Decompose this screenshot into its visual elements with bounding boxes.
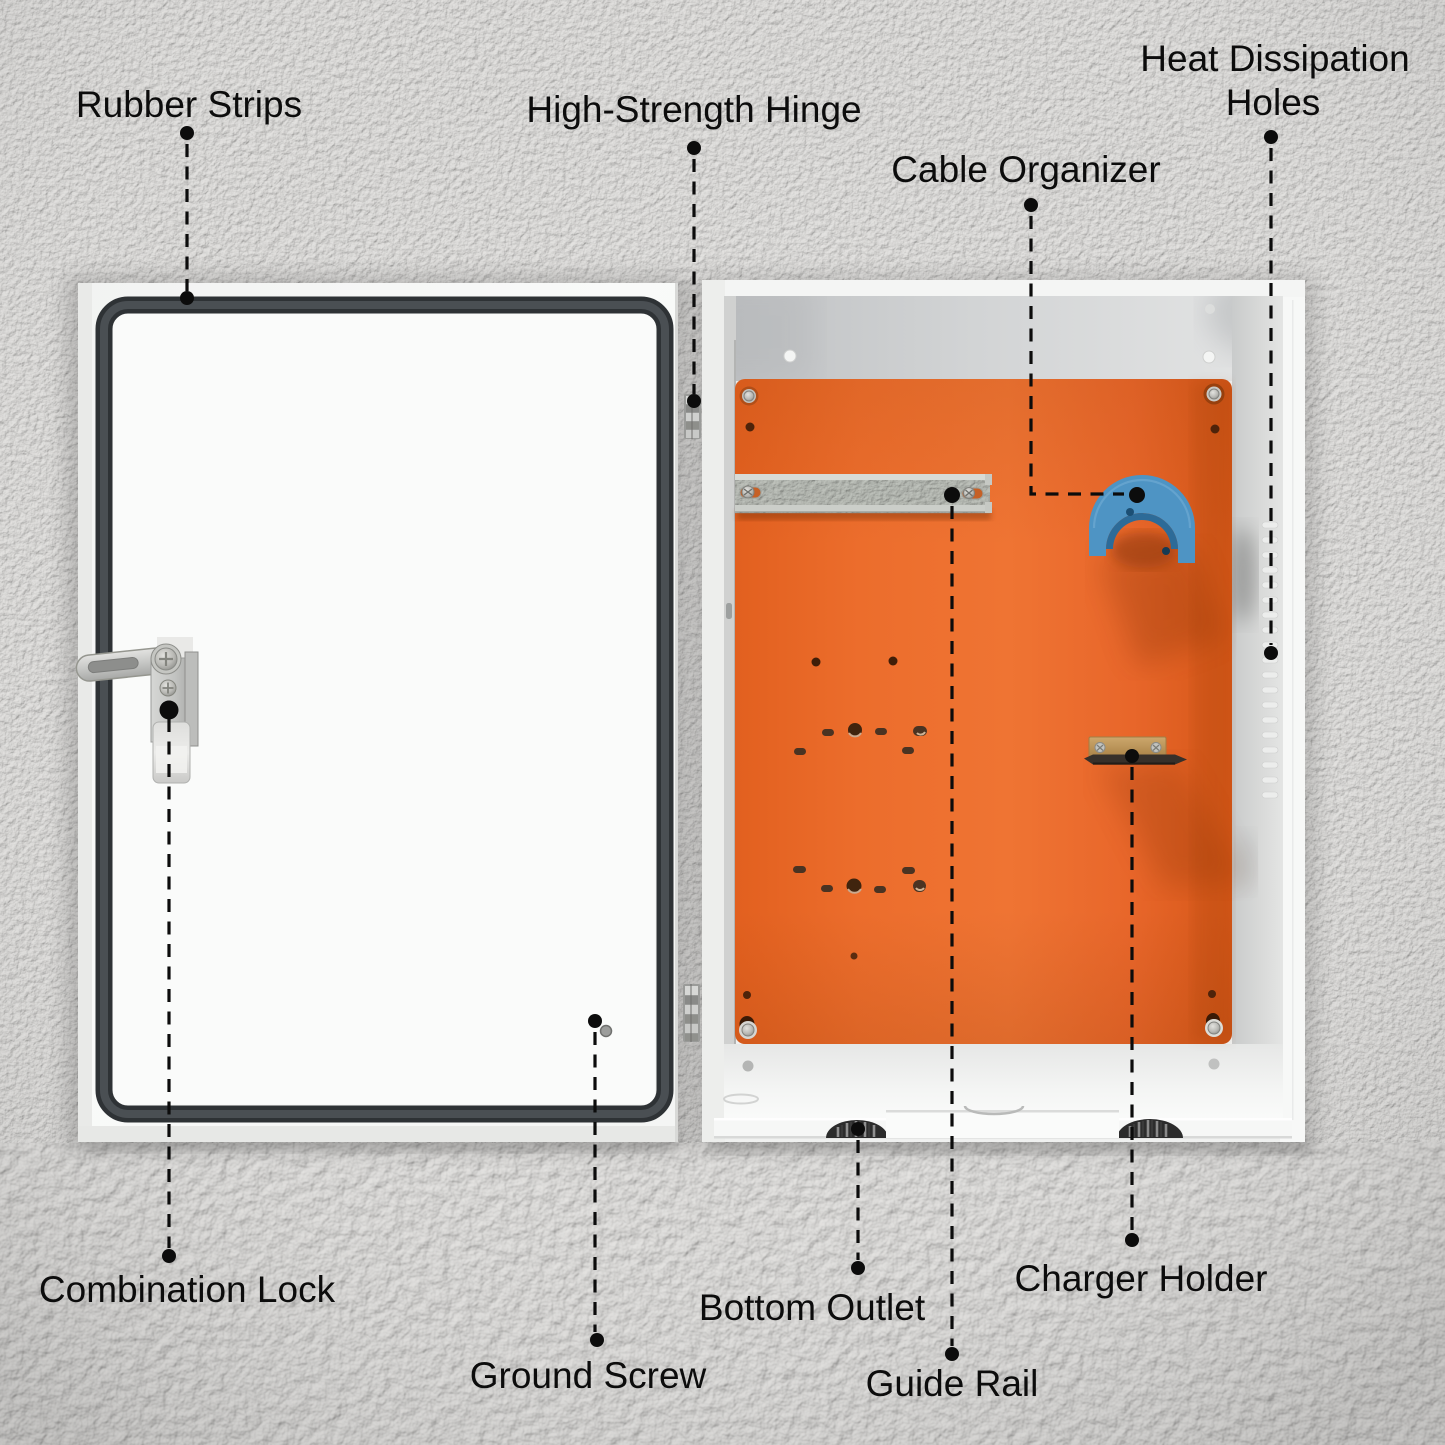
- svg-text:Heat Dissipation: Heat Dissipation: [1140, 38, 1409, 79]
- svg-text:Guide Rail: Guide Rail: [866, 1363, 1039, 1404]
- svg-text:Holes: Holes: [1226, 82, 1321, 123]
- svg-text:Bottom Outlet: Bottom Outlet: [699, 1287, 926, 1328]
- svg-text:Rubber Strips: Rubber Strips: [76, 84, 302, 125]
- svg-text:High-Strength Hinge: High-Strength Hinge: [526, 89, 861, 130]
- svg-text:Combination Lock: Combination Lock: [39, 1269, 336, 1310]
- svg-text:Charger Holder: Charger Holder: [1015, 1258, 1268, 1299]
- svg-text:Cable Organizer: Cable Organizer: [891, 149, 1160, 190]
- svg-text:Ground Screw: Ground Screw: [470, 1355, 707, 1396]
